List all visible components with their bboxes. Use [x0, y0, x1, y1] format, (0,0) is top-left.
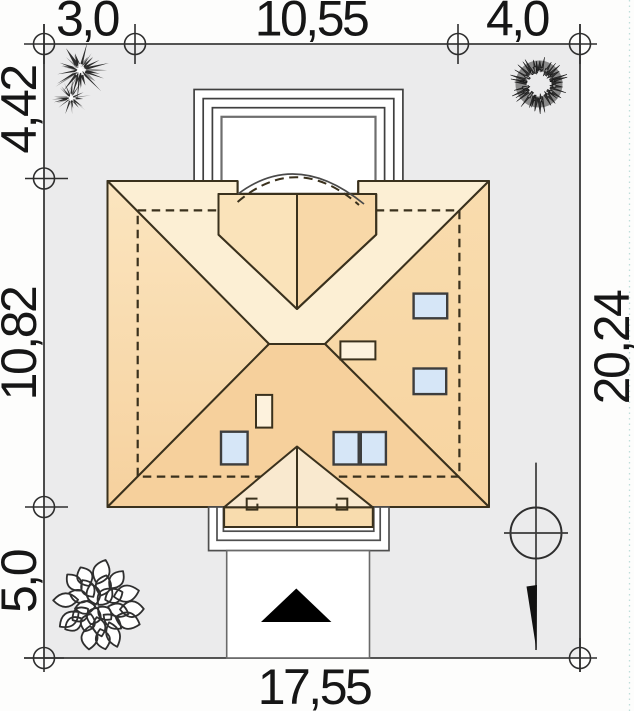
svg-text:4,42: 4,42: [0, 66, 47, 154]
svg-text:20,24: 20,24: [584, 290, 634, 404]
svg-text:10,55: 10,55: [255, 0, 368, 47]
svg-text:4,0: 4,0: [486, 0, 549, 47]
svg-text:5,0: 5,0: [0, 550, 47, 613]
svg-text:10,82: 10,82: [0, 287, 47, 400]
svg-text:3,0: 3,0: [56, 0, 119, 47]
svg-text:17,55: 17,55: [258, 659, 371, 711]
